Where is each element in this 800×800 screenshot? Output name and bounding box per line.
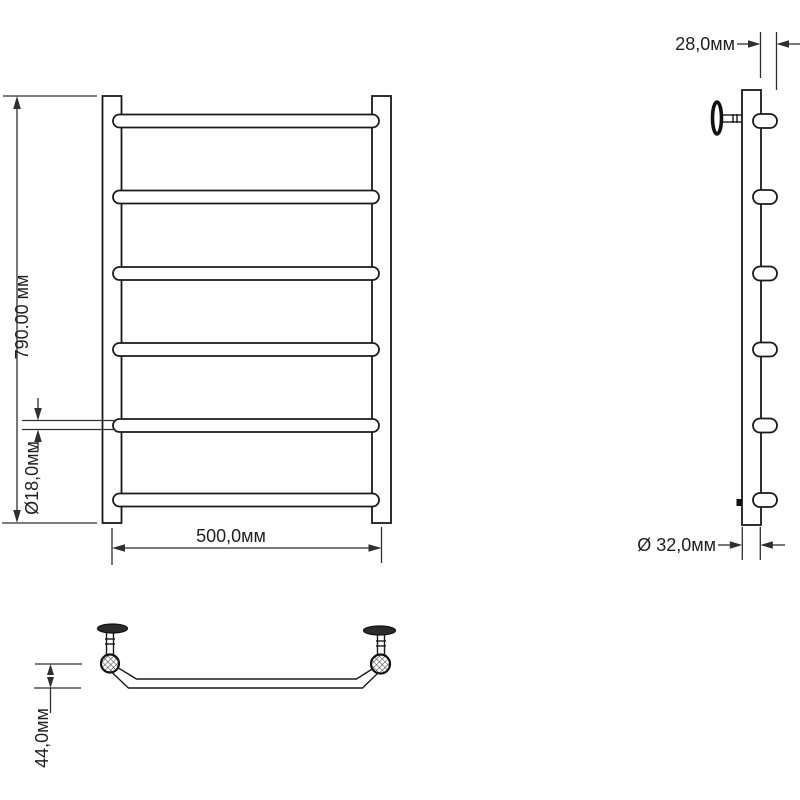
bracket-stem — [722, 115, 742, 122]
arrowhead-up-icon — [47, 664, 54, 675]
rung-bottom-edge — [111, 672, 377, 689]
rung-top-edge — [118, 668, 374, 680]
rung — [113, 191, 379, 204]
arrowhead-up-icon — [34, 430, 42, 443]
height-dim-label: 790.00 мм — [12, 275, 32, 360]
front-right-rail — [372, 96, 391, 523]
rung-end — [753, 114, 777, 128]
side-profile — [742, 90, 761, 525]
rung-end — [753, 343, 777, 357]
dim-tube-diameter: Ø 32,0мм — [637, 527, 785, 560]
side-view: 28,0мм Ø 32,0мм — [637, 32, 800, 560]
mount-stem — [378, 633, 385, 657]
dim-width: 500,0мм — [112, 526, 382, 565]
dim-height: 790.00 мм — [2, 96, 97, 523]
bottom-rung-outline — [111, 668, 377, 689]
tube-diameter-dim-label: Ø 32,0мм — [637, 535, 716, 555]
arrowhead-right-icon — [369, 544, 382, 552]
dim-offset: 44,0мм — [32, 664, 82, 768]
arrowhead-down-icon — [47, 677, 54, 688]
front-view: 790.00 мм Ø18,0мм 500,0мм — [2, 96, 391, 565]
rung — [113, 494, 379, 507]
depth-dim-label: 28,0мм — [675, 34, 735, 54]
offset-dim-label: 44,0мм — [32, 708, 52, 768]
rung — [113, 343, 379, 356]
arrowhead-down-icon — [13, 510, 21, 523]
rung — [113, 115, 379, 128]
front-left-rail — [103, 96, 122, 523]
arrowhead-left-icon — [760, 541, 773, 549]
right-mount — [364, 626, 396, 674]
bar-diameter-dim-label: Ø18,0мм — [22, 441, 42, 515]
mount-flange — [98, 624, 128, 633]
drawing-canvas: 790.00 мм Ø18,0мм 500,0мм — [0, 0, 800, 800]
rung-end — [753, 419, 777, 433]
mount-flange — [364, 626, 396, 635]
width-dim-label: 500,0мм — [196, 526, 266, 546]
rung-end — [753, 190, 777, 204]
arrowhead-left-icon — [777, 40, 790, 48]
rung-end — [753, 267, 777, 281]
arrowhead-right-icon — [748, 40, 761, 48]
mount-hub-outline — [371, 655, 390, 674]
arrowhead-up-icon — [13, 96, 21, 109]
rung-end — [753, 493, 777, 507]
bracket-flange — [713, 102, 722, 134]
bottom-view: 44,0мм — [32, 624, 396, 768]
arrowhead-right-icon — [730, 541, 743, 549]
technical-drawing-page: 790.00 мм Ø18,0мм 500,0мм — [0, 0, 800, 800]
arrowhead-down-icon — [34, 408, 42, 421]
dim-bar-diameter: Ø18,0мм — [22, 398, 115, 515]
wall-bracket — [713, 102, 743, 134]
mount-hub-outline — [101, 655, 119, 673]
rung — [113, 267, 379, 280]
lower-bracket-mark — [737, 499, 743, 506]
arrowhead-left-icon — [112, 544, 125, 552]
left-mount — [98, 624, 128, 673]
front-rungs — [113, 115, 379, 507]
rung — [113, 419, 379, 432]
dim-depth: 28,0мм — [675, 32, 800, 90]
